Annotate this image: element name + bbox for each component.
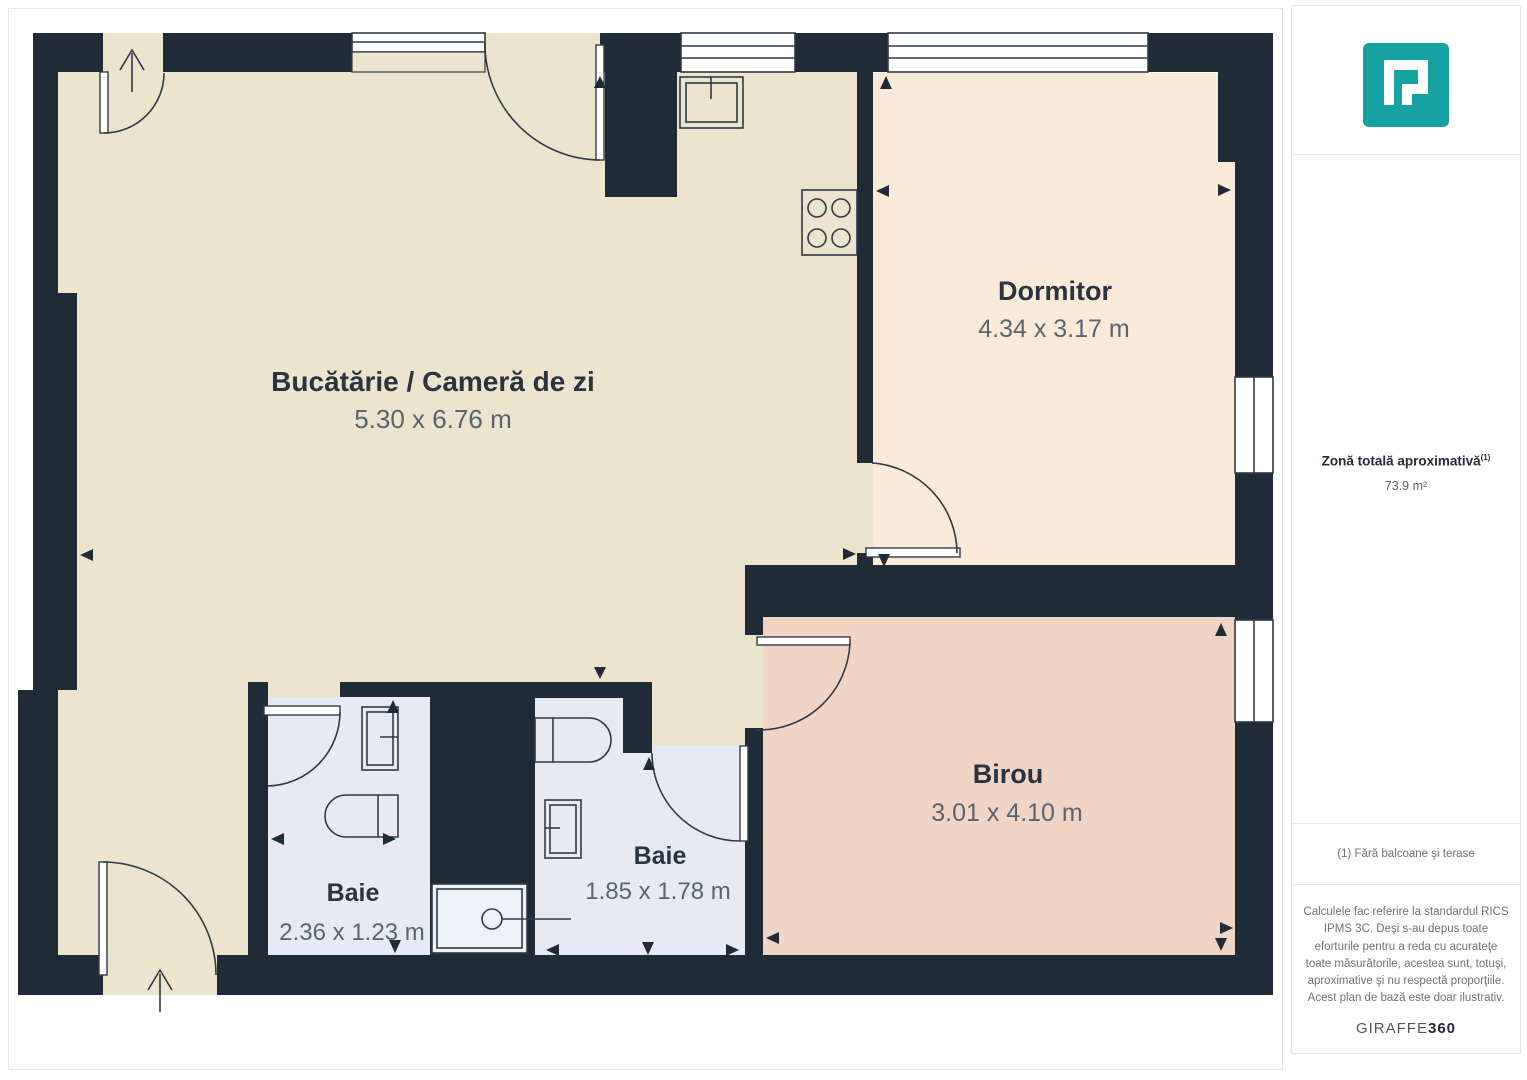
wall: [745, 617, 763, 635]
wall: [58, 955, 103, 995]
disclaimer-text: Calculele fac referire la standardul RIC…: [1302, 904, 1510, 1008]
window: [352, 33, 485, 72]
room-label-bath-1: Baie: [327, 879, 380, 907]
brand-wordmark: GIRAFFE360: [1292, 1020, 1520, 1037]
wall: [18, 690, 58, 995]
total-area-note-marker: (1): [1481, 453, 1491, 462]
wall: [1235, 72, 1273, 377]
wall: [857, 72, 873, 463]
total-area-label: Zonă totală aproximativă(1): [1292, 453, 1520, 469]
brand-logo-icon: [1363, 43, 1449, 127]
wall: [1218, 72, 1235, 162]
floor-plan: Bucătărie / Cameră de zi 5.30 x 6.76 m D…: [0, 0, 1290, 1080]
page: Bucătărie / Cameră de zi 5.30 x 6.76 m D…: [0, 0, 1527, 1080]
wall: [745, 565, 1235, 617]
wall: [795, 33, 888, 72]
wall: [1235, 722, 1273, 995]
brand-name: GIRAFFE: [1356, 1020, 1428, 1037]
wall: [340, 682, 430, 697]
total-area-label-text: Zonă totală aproximativă: [1322, 454, 1481, 469]
wall: [1235, 473, 1273, 620]
bath-2-threshold: [652, 682, 745, 745]
room-dims-kitchen: 5.30 x 6.76 m: [354, 404, 512, 434]
room-dims-bath-2: 1.85 x 1.78 m: [585, 878, 730, 905]
wall: [1148, 33, 1273, 72]
logo-card: [1291, 5, 1521, 155]
room-bath-1-floor: [268, 697, 430, 955]
wall: [605, 72, 677, 197]
wall: [33, 293, 77, 690]
opening-top-door-2: [485, 33, 600, 72]
logo-glyph-icon: [1363, 43, 1449, 127]
wall: [217, 955, 1273, 995]
window: [681, 33, 795, 72]
window: [888, 33, 1148, 72]
wall: [535, 682, 623, 698]
window: [1235, 377, 1273, 473]
room-dims-bedroom: 4.34 x 3.17 m: [978, 315, 1129, 343]
room-label-office: Birou: [973, 759, 1044, 789]
info-sidebar: Zonă totală aproximativă(1) 73.9 m² (1) …: [1291, 6, 1521, 1054]
opening-bedroom-door: [857, 463, 873, 553]
total-area-value: 73.9 m²: [1292, 479, 1520, 493]
room-label-kitchen: Bucătărie / Cameră de zi: [271, 366, 595, 397]
wall: [33, 33, 58, 293]
total-area-card: Zonă totală aproximativă(1) 73.9 m²: [1291, 154, 1521, 824]
footnote-card: (1) Fără balcoane şi terase: [1291, 823, 1521, 885]
room-label-bath-2: Baie: [634, 842, 687, 870]
total-area-block: Zonă totală aproximativă(1) 73.9 m²: [1292, 453, 1520, 493]
room-label-bedroom: Dormitor: [998, 276, 1112, 306]
wall: [623, 682, 652, 753]
disclaimer-card: Calculele fac referire la standardul RIC…: [1291, 884, 1521, 1054]
wall: [248, 682, 268, 955]
window: [1235, 620, 1273, 722]
brand-suffix: 360: [1428, 1020, 1456, 1037]
footnote-text: (1) Fără balcoane şi terase: [1337, 848, 1474, 860]
wall: [163, 33, 352, 72]
room-dims-office: 3.01 x 4.10 m: [931, 799, 1082, 827]
room-dims-bath-1: 2.36 x 1.23 m: [279, 919, 424, 946]
wall: [600, 33, 681, 72]
